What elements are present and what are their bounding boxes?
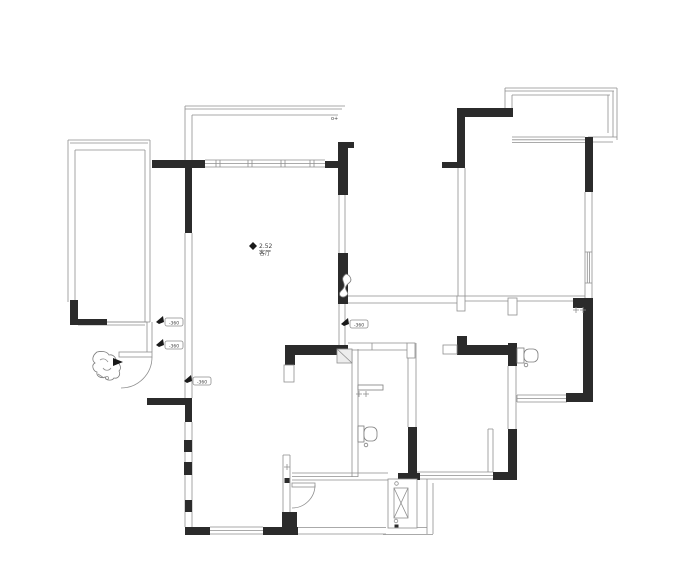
toilet xyxy=(358,426,377,447)
thick-walls xyxy=(70,108,593,535)
balcony-top-right-walls xyxy=(505,88,617,143)
flag-value: -360 xyxy=(197,380,207,386)
level-diamond-icon xyxy=(249,242,257,250)
door-jamb xyxy=(407,343,415,358)
kitchen-walls xyxy=(417,366,516,479)
door-swing-arc xyxy=(292,485,315,508)
wall-segment xyxy=(408,427,417,480)
toilet-flush-dot xyxy=(524,363,528,367)
flag-icon xyxy=(156,339,164,347)
shaft-meter-dot xyxy=(395,525,399,528)
bathroom-middle-walls xyxy=(352,343,416,477)
wall-segment xyxy=(583,308,593,402)
toilet-flush-dot xyxy=(364,443,368,447)
bathroom-right-window xyxy=(517,395,567,402)
wall-segment xyxy=(152,160,205,168)
socket-dot xyxy=(285,478,290,483)
entry-walls xyxy=(70,322,152,352)
toilet-bowl xyxy=(364,427,377,441)
door-jamb xyxy=(457,296,465,311)
counter-band xyxy=(292,473,388,480)
shaft-outline xyxy=(388,479,417,528)
toilet xyxy=(517,348,538,367)
elevation-flag: -360 xyxy=(156,339,183,350)
dining-right-wall xyxy=(458,168,465,296)
wall-segment xyxy=(147,398,190,405)
duct-shaft xyxy=(388,479,417,528)
corner-mark: o+ xyxy=(331,116,338,122)
flag-icon xyxy=(156,316,164,324)
wall-segment xyxy=(348,142,354,148)
wall-segment xyxy=(566,393,593,402)
level-label: 客厅 xyxy=(259,249,271,257)
entry-plant xyxy=(93,351,121,380)
wall-segment xyxy=(185,500,192,512)
wall-segment xyxy=(460,345,513,355)
bedroom-bottom-walls xyxy=(210,455,386,534)
flag-value: -360 xyxy=(169,321,179,327)
wall-segment xyxy=(185,527,210,535)
elevation-flag: -360 xyxy=(184,375,211,386)
living-room-window xyxy=(205,160,325,167)
wall-segment xyxy=(184,440,192,452)
corridor-bottom-wall xyxy=(348,343,407,350)
toilet-bowl xyxy=(524,349,538,362)
wall-segment xyxy=(442,162,457,168)
wall-segment xyxy=(70,319,107,325)
sink-counter xyxy=(358,385,383,390)
door-jamb xyxy=(508,298,517,315)
wall-segment xyxy=(285,355,295,365)
wall-segment xyxy=(263,527,298,535)
flag-value: -360 xyxy=(354,323,364,329)
wall-segment xyxy=(508,343,517,366)
level-marker: 2.52 客厅 xyxy=(249,242,273,257)
door-jambs xyxy=(284,296,517,382)
flag-value: -360 xyxy=(169,344,179,350)
bedroom-door xyxy=(292,483,315,508)
toilet-tank xyxy=(517,348,524,363)
wall-segment xyxy=(185,166,192,233)
wall-segment xyxy=(493,472,517,480)
wall-segment xyxy=(185,398,192,422)
elevation-flag: -360 xyxy=(156,316,183,327)
door-jamb xyxy=(284,365,294,382)
level-value: 2.52 xyxy=(259,243,273,250)
door-leaf xyxy=(292,483,315,487)
balcony-top-center-walls xyxy=(185,106,345,160)
balcony-top-left-walls xyxy=(68,140,150,325)
switch-icon xyxy=(284,464,290,470)
toilet-tank xyxy=(358,426,364,442)
bedroom-right-wall-window xyxy=(585,192,592,298)
door-swing-arc xyxy=(121,357,152,388)
wall-segment xyxy=(585,137,593,192)
column-box xyxy=(337,349,352,363)
wall-segment xyxy=(184,462,192,475)
floor-plan-canvas: -360 -360 -360 -360 2.52 客厅 o+ xyxy=(0,0,700,584)
wall-segment xyxy=(573,298,593,308)
plant-foliage xyxy=(93,351,121,380)
entry-door xyxy=(119,352,152,388)
door-leaf xyxy=(119,352,152,357)
wall-segment xyxy=(457,108,513,117)
door-jamb xyxy=(443,345,457,354)
wall-segment xyxy=(338,142,348,195)
wall-segment xyxy=(282,512,297,528)
